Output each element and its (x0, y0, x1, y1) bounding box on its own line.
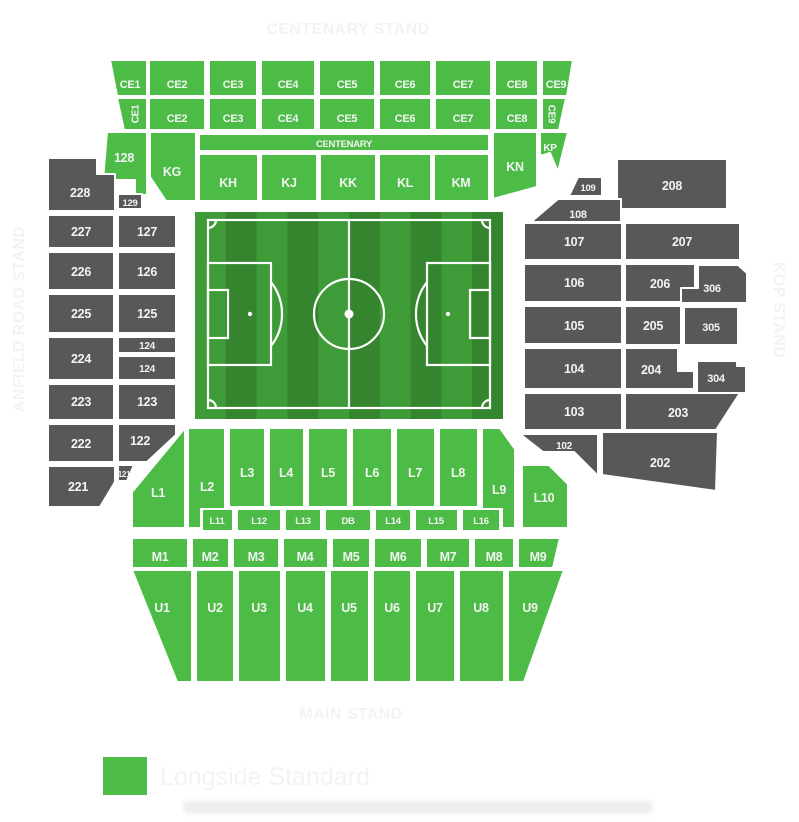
section-L4-label: L4 (279, 466, 293, 480)
section-CE5-label: CE5 (337, 79, 358, 91)
section-U1[interactable] (132, 570, 192, 682)
section-225-label: 225 (71, 307, 91, 321)
section-L1-label: L1 (151, 486, 165, 500)
section-CE2-lower-label: CE2 (167, 113, 188, 125)
section-CE9-label: CE9 (546, 79, 567, 91)
section-M3-label: M3 (248, 550, 265, 564)
section-L14-label: L14 (385, 516, 401, 527)
section-CE1-label: CE1 (120, 79, 141, 91)
section-L5-label: L5 (321, 466, 335, 480)
section-CE5-lower-label: CE5 (337, 113, 358, 125)
section-122-label: 122 (130, 434, 150, 448)
section-CE7-label: CE7 (453, 79, 474, 91)
kop-stand-title: KOP STAND (770, 262, 787, 358)
section-U4[interactable] (285, 570, 326, 682)
section-CE3-lower-label: CE3 (223, 113, 244, 125)
section-CE8-label: CE8 (507, 79, 528, 91)
legend-label-longside-standard: Longside Standard (160, 763, 370, 791)
section-202-label: 202 (650, 456, 670, 470)
pitch-stripe (472, 212, 503, 419)
section-104-label: 104 (564, 362, 584, 376)
section-M6-label: M6 (390, 550, 407, 564)
anfield-road-stand-title: ANFIELD ROAD STAND (11, 226, 28, 412)
section-CE9-lower-label: CE9 (546, 105, 557, 124)
section-U8[interactable] (459, 570, 504, 682)
section-M5-label: M5 (343, 550, 360, 564)
section-126-label: 126 (137, 265, 157, 279)
section-L11-label: L11 (210, 516, 226, 527)
section-103-label: 103 (564, 405, 584, 419)
section-L3-label: L3 (240, 466, 254, 480)
section-L7-label: L7 (408, 466, 422, 480)
section-M8-label: M8 (486, 550, 503, 564)
section-U2[interactable] (196, 570, 234, 682)
section-KH-label: KH (219, 176, 237, 190)
section-125-label: 125 (137, 307, 157, 321)
section-121-label: 121 (118, 470, 131, 479)
section-CE6-lower-label: CE6 (395, 113, 416, 125)
section-L10-label: L10 (534, 491, 555, 505)
section-U3-label: U3 (251, 601, 267, 615)
section-L6-label: L6 (365, 466, 379, 480)
section-221-label: 221 (68, 480, 88, 494)
section-CE4-label: CE4 (278, 79, 300, 91)
section-102-label: 102 (556, 441, 573, 452)
pitch-stripe (349, 212, 380, 419)
section-123-label: 123 (137, 395, 157, 409)
section-U6[interactable] (373, 570, 411, 682)
section-L12-label: L12 (251, 516, 266, 527)
section-U5-label: U5 (341, 601, 357, 615)
section-106-label: 106 (564, 276, 584, 290)
section-KM-label: KM (452, 176, 471, 190)
pitch-penalty-spot-left (248, 312, 252, 316)
section-KG-label: KG (163, 165, 181, 179)
centenary-banner-label: CENTENARY (316, 139, 373, 150)
section-M2-label: M2 (202, 550, 219, 564)
section-128-label: 128 (114, 151, 134, 165)
section-CE7-lower-label: CE7 (453, 113, 474, 125)
section-L13-label: L13 (295, 516, 310, 527)
section-KK-label: KK (339, 176, 357, 190)
section-124-lower-label: 124 (139, 364, 156, 375)
section-L9-label: L9 (492, 483, 506, 497)
legend-swatch-longside-standard (103, 757, 147, 795)
section-CE4-lower-label: CE4 (278, 113, 300, 125)
section-M1-label: M1 (152, 550, 169, 564)
section-109-label: 109 (581, 183, 596, 194)
section-M4-label: M4 (297, 550, 314, 564)
section-226-label: 226 (71, 265, 91, 279)
section-127-label: 127 (137, 225, 157, 239)
section-203-label: 203 (668, 406, 688, 420)
legend: Longside Standard (103, 757, 370, 795)
section-206-label: 206 (650, 277, 670, 291)
section-L2-label: L2 (200, 480, 214, 494)
section-KJ-label: KJ (281, 176, 297, 190)
section-L15-label: L15 (428, 516, 444, 527)
pitch-stripe (226, 212, 257, 419)
centenary-stand-title: CENTENARY STAND (266, 21, 429, 38)
football-pitch (195, 212, 503, 419)
section-105-label: 105 (564, 319, 584, 333)
section-KL-label: KL (397, 176, 414, 190)
section-U9[interactable] (508, 570, 564, 682)
section-U7[interactable] (415, 570, 455, 682)
pitch-centre-spot (345, 310, 354, 319)
section-306-label: 306 (703, 283, 721, 295)
section-305-label: 305 (702, 322, 720, 334)
section-L8-label: L8 (451, 466, 465, 480)
section-205-label: 205 (643, 319, 663, 333)
section-U4-label: U4 (297, 601, 313, 615)
section-U6-label: U6 (384, 601, 400, 615)
section-U3[interactable] (238, 570, 281, 682)
section-208-label: 208 (662, 179, 682, 193)
section-204-label: 204 (641, 363, 661, 377)
section-CE2-label: CE2 (167, 79, 188, 91)
section-107-label: 107 (564, 235, 584, 249)
section-M9-label: M9 (530, 550, 547, 564)
section-129-label: 129 (123, 198, 138, 209)
section-224-label: 224 (71, 352, 91, 366)
section-U8-label: U8 (473, 601, 489, 615)
section-U1-label: U1 (154, 601, 170, 615)
section-L16-label: L16 (473, 516, 488, 527)
faded-footer-text (183, 801, 653, 814)
pitch-penalty-spot-right (446, 312, 450, 316)
section-CE1-lower-label: CE1 (131, 104, 142, 123)
section-U5[interactable] (330, 570, 369, 682)
section-228-label: 228 (70, 186, 90, 200)
section-CE3-label: CE3 (223, 79, 244, 91)
section-108-label: 108 (569, 209, 587, 221)
section-CE8-lower-label: CE8 (507, 113, 528, 125)
section-227-label: 227 (71, 225, 91, 239)
section-DB-label: DB (341, 516, 355, 527)
section-CE6-label: CE6 (395, 79, 416, 91)
section-207-label: 207 (672, 235, 692, 249)
main-stand-title: MAIN STAND (299, 706, 402, 723)
section-U9-label: U9 (522, 601, 538, 615)
section-KP-label: KP (543, 143, 557, 154)
seat-map: CENTENARY STAND MAIN STAND ANFIELD ROAD … (0, 0, 799, 822)
section-U2-label: U2 (207, 601, 223, 615)
section-222-label: 222 (71, 437, 91, 451)
section-223-label: 223 (71, 395, 91, 409)
section-U7-label: U7 (427, 601, 443, 615)
section-124-upper-label: 124 (139, 341, 156, 352)
section-304-label: 304 (707, 373, 726, 385)
seat-map-page: CENTENARY STAND MAIN STAND ANFIELD ROAD … (0, 0, 799, 822)
section-M7-label: M7 (440, 550, 457, 564)
section-KN-label: KN (506, 160, 524, 174)
